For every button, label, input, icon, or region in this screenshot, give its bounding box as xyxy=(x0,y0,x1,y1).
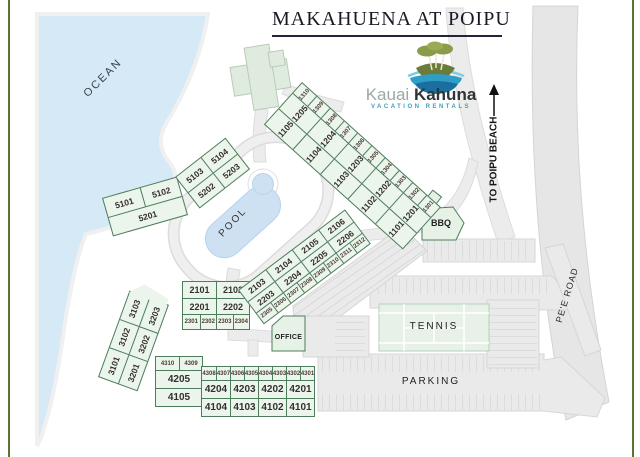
tennis-label: TENNIS xyxy=(389,321,479,332)
unit-2303: 2303 xyxy=(216,315,233,329)
unit-4102: 4102 xyxy=(258,399,286,416)
unit-4304: 4304 xyxy=(258,367,272,380)
brand-word-kahuna: Kahuna xyxy=(414,85,476,104)
unit-4104: 4104 xyxy=(202,399,230,416)
unit-2201: 2201 xyxy=(183,299,216,314)
to-poipu-beach-label: TO POIPU BEACH xyxy=(489,100,500,220)
unit-4105: 4105 xyxy=(156,389,202,406)
unit-4310: 4310 xyxy=(156,357,179,370)
page-title: MAKAHUENA AT POIPU xyxy=(272,8,502,37)
unit-4101: 4101 xyxy=(286,399,314,416)
building-4-right: 4308 4307 4306 4305 4304 4303 4302 4301 … xyxy=(201,366,315,417)
unit-2302: 2302 xyxy=(200,315,217,329)
unit-4203: 4203 xyxy=(230,381,258,398)
unit-4205: 4205 xyxy=(156,371,202,388)
brand-word-kauai: Kauai xyxy=(366,85,409,104)
unit-4303: 4303 xyxy=(272,367,286,380)
unit-2301: 2301 xyxy=(183,315,200,329)
spa xyxy=(253,174,274,195)
unit-4306: 4306 xyxy=(230,367,244,380)
building-4-left: 4310 4309 4205 4105 xyxy=(155,356,203,407)
unit-4309: 4309 xyxy=(179,357,202,370)
unit-2101: 2101 xyxy=(183,282,216,298)
unit-4301: 4301 xyxy=(300,367,314,380)
unit-4103: 4103 xyxy=(230,399,258,416)
unit-4308: 4308 xyxy=(202,367,216,380)
brand-wordmark: Kauai Kahuna xyxy=(356,85,486,105)
office-label: OFFICE xyxy=(273,334,304,341)
resort-site-map: MAKAHUENA AT POIPU Kauai Kahuna VACATION… xyxy=(0,0,640,457)
unit-2304: 2304 xyxy=(233,315,250,329)
unit-4305: 4305 xyxy=(244,367,258,380)
unit-2202: 2202 xyxy=(216,299,249,314)
parking-label: PARKING xyxy=(385,376,477,387)
unit-4204: 4204 xyxy=(202,381,230,398)
unit-4302: 4302 xyxy=(286,367,300,380)
brand-tagline: VACATION RENTALS xyxy=(366,104,476,110)
unit-4307: 4307 xyxy=(216,367,230,380)
unit-4202: 4202 xyxy=(258,381,286,398)
unit-4201: 4201 xyxy=(286,381,314,398)
